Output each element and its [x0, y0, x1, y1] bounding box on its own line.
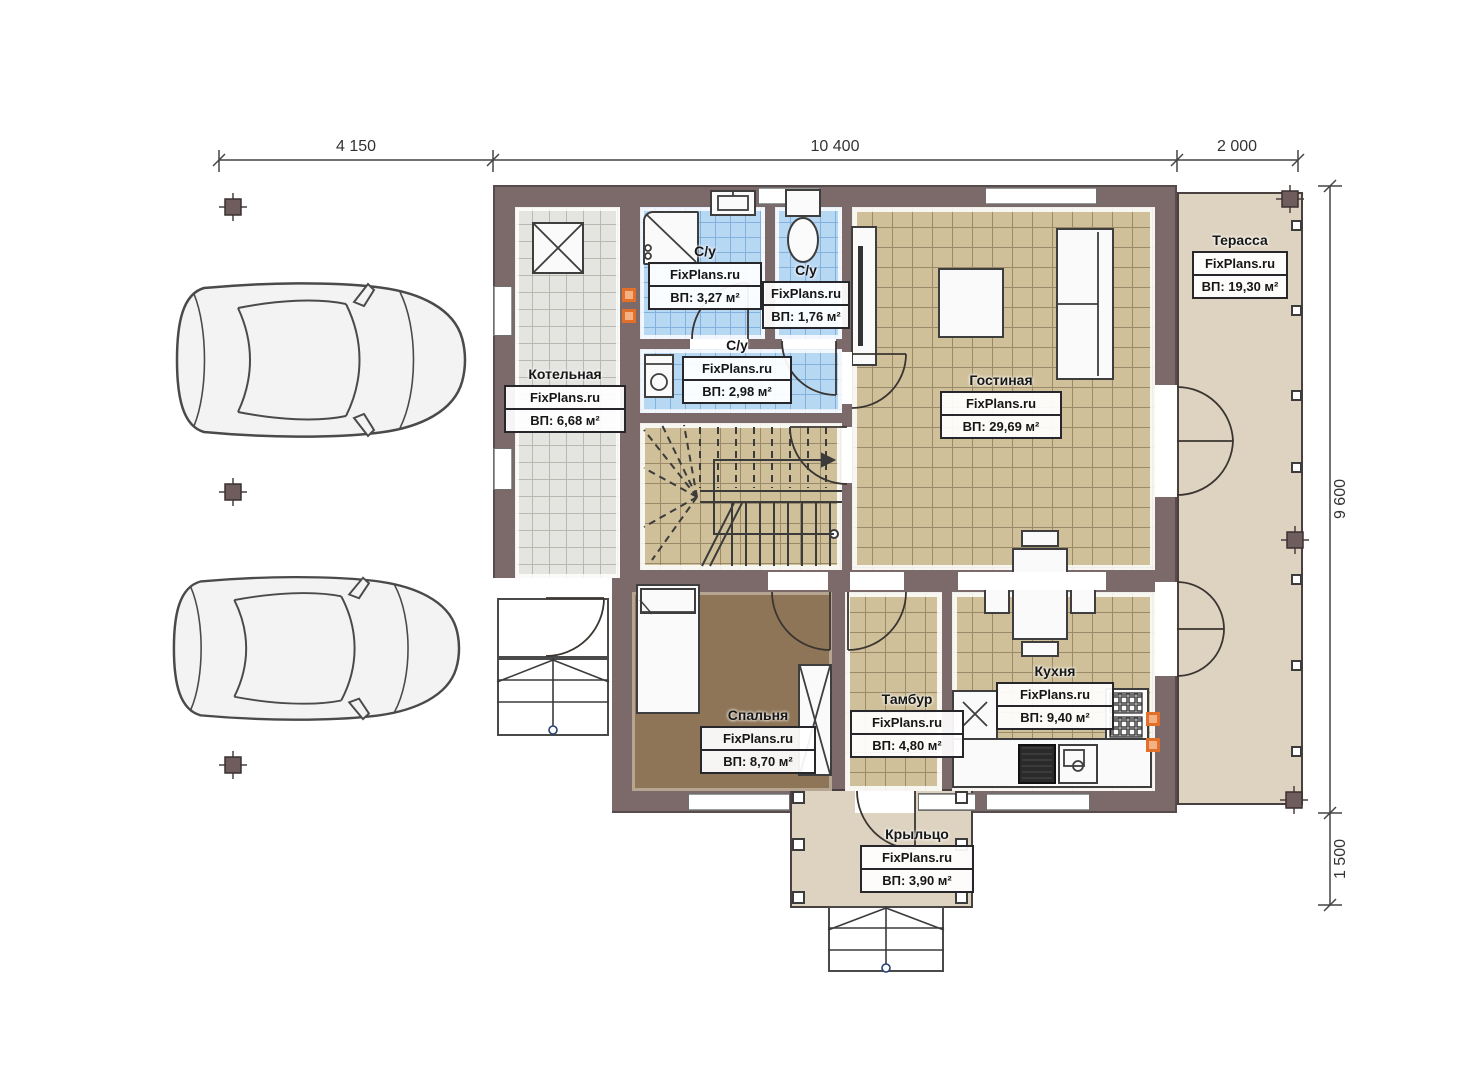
room-label-boiler: Котельная FixPlans.ruВП: 6,68 м²	[504, 366, 626, 433]
watermark: FixPlans.ru	[684, 358, 790, 381]
room-area: ВП: 3,90 м²	[862, 870, 972, 891]
floor-plan: 4 150 10 400 2 000 9 600 1 500 Котельная…	[0, 0, 1473, 1080]
room-name: Гостиная	[940, 372, 1062, 388]
watermark: FixPlans.ru	[852, 712, 962, 735]
side-entry-steps	[497, 658, 609, 736]
dim-top-left: 4 150	[300, 138, 412, 156]
sofa	[1056, 228, 1114, 380]
dim-top-right: 2 000	[1181, 138, 1293, 156]
terrace-post	[1291, 574, 1302, 585]
room-area: ВП: 6,68 м²	[506, 410, 624, 431]
window-left-boiler-2	[493, 448, 513, 490]
dim-right-main: 9 600	[1332, 464, 1350, 534]
survey-marker	[219, 193, 247, 221]
door-opening-porch	[855, 791, 915, 813]
watermark: FixPlans.ru	[764, 283, 848, 306]
washing-machine	[644, 354, 674, 398]
tv-bench	[851, 226, 877, 366]
dimension-line-right	[1318, 180, 1342, 911]
room-area: ВП: 2,98 м²	[684, 381, 790, 402]
window-bottom-bedroom	[688, 793, 790, 811]
dim-right-porch: 1 500	[1332, 824, 1350, 894]
dim-top-center: 10 400	[779, 138, 891, 156]
room-name: Спальня	[700, 707, 816, 723]
terrace-post	[1291, 305, 1302, 316]
dining-table	[1012, 548, 1068, 640]
survey-marker	[219, 478, 247, 506]
watermark: FixPlans.ru	[862, 847, 972, 870]
room-label-bedroom: Спальня FixPlans.ruВП: 8,70 м²	[700, 707, 816, 774]
terrace-post	[1291, 462, 1302, 473]
room-area: ВП: 29,69 м²	[942, 416, 1060, 437]
room-area: ВП: 1,76 м²	[764, 306, 848, 327]
bed-pillow	[640, 588, 696, 614]
porch-post	[955, 791, 968, 804]
watermark: FixPlans.ru	[650, 264, 760, 287]
room-area: ВП: 8,70 м²	[702, 751, 814, 772]
room-label-bath3: С/у FixPlans.ruВП: 2,98 м²	[682, 337, 792, 404]
terrace-post	[1291, 390, 1302, 401]
boiler-unit	[532, 222, 584, 274]
door-opening-bath3	[842, 352, 852, 404]
window-left-boiler-1	[493, 286, 513, 336]
french-door-opening-kitchen	[1155, 582, 1177, 676]
room-label-porch: Крыльцо FixPlans.ruВП: 3,90 м²	[860, 826, 974, 893]
watermark: FixPlans.ru	[702, 728, 814, 751]
room-name: С/у	[648, 243, 762, 259]
watermark: FixPlans.ru	[506, 387, 624, 410]
terrace-post	[1291, 660, 1302, 671]
side-entry-vestibule	[497, 598, 609, 658]
passage-living-kitchen	[958, 572, 1106, 590]
room-name: Терасса	[1192, 232, 1288, 248]
coffee-table	[938, 268, 1004, 338]
window-top-bath	[758, 187, 820, 205]
room-name: Тамбур	[850, 691, 964, 707]
porch-post	[792, 838, 805, 851]
car-bottom	[174, 577, 459, 720]
door-opening-bedroom	[768, 572, 828, 590]
bathroom-sink	[710, 190, 756, 216]
room-stair-hall	[640, 423, 842, 570]
dining-chair-bottom	[1021, 641, 1059, 657]
terrace-post	[1291, 220, 1302, 231]
terrace-post	[1291, 746, 1302, 757]
vent-marker	[1146, 738, 1160, 752]
door-opening-tambour	[850, 572, 904, 590]
window-bottom-kitchen	[986, 793, 1090, 811]
watermark: FixPlans.ru	[1194, 253, 1286, 276]
car-top	[177, 283, 465, 436]
room-label-living: Гостиная FixPlans.ruВП: 29,69 м²	[940, 372, 1062, 439]
vent-marker	[622, 309, 636, 323]
watermark: FixPlans.ru	[942, 393, 1060, 416]
room-label-tambour: Тамбур FixPlans.ruВП: 4,80 м²	[850, 691, 964, 758]
watermark: FixPlans.ru	[998, 684, 1112, 707]
room-area: ВП: 4,80 м²	[852, 735, 962, 756]
dining-chair-top	[1021, 530, 1059, 547]
room-name: С/у	[762, 262, 850, 278]
dishwasher	[1018, 744, 1056, 784]
room-area: ВП: 19,30 м²	[1194, 276, 1286, 297]
room-name: Крыльцо	[860, 826, 974, 842]
porch-post	[792, 791, 805, 804]
survey-marker	[219, 751, 247, 779]
room-name: Кухня	[996, 663, 1114, 679]
vent-marker	[1146, 712, 1160, 726]
room-label-bath2: С/у FixPlans.ruВП: 1,76 м²	[762, 262, 850, 329]
room-name: С/у	[682, 337, 792, 353]
room-name: Котельная	[504, 366, 626, 382]
french-door-opening-living	[1155, 385, 1177, 497]
kitchen-sink	[1058, 744, 1098, 784]
room-label-terrace: Терасса FixPlans.ruВП: 19,30 м²	[1192, 232, 1288, 299]
window-top-living	[985, 187, 1097, 205]
room-label-bath1: С/у FixPlans.ruВП: 3,27 м²	[648, 243, 762, 310]
tv-screen	[858, 246, 863, 346]
porch-post	[792, 891, 805, 904]
vent-marker	[622, 288, 636, 302]
door-opening-stairs	[842, 427, 852, 483]
room-label-kitchen: Кухня FixPlans.ruВП: 9,40 м²	[996, 663, 1114, 730]
room-area: ВП: 9,40 м²	[998, 707, 1112, 728]
room-area: ВП: 3,27 м²	[650, 287, 760, 308]
porch-steps	[828, 906, 944, 972]
